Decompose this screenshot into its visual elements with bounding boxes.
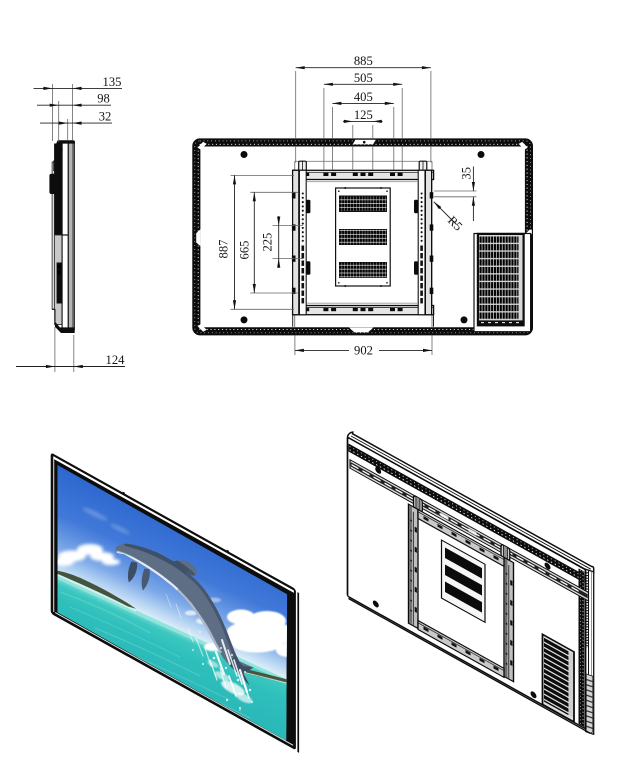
svg-text:902: 902 [354, 343, 373, 357]
svg-text:125: 125 [354, 108, 373, 122]
svg-text:887: 887 [217, 240, 231, 259]
svg-text:885: 885 [354, 54, 373, 68]
svg-text:35: 35 [459, 167, 473, 180]
svg-text:405: 405 [354, 90, 373, 104]
svg-text:32: 32 [99, 110, 112, 124]
svg-text:505: 505 [354, 71, 373, 85]
svg-text:98: 98 [97, 92, 110, 106]
svg-text:135: 135 [103, 75, 122, 89]
svg-text:225: 225 [260, 233, 274, 252]
svg-text:665: 665 [237, 241, 251, 260]
svg-text:124: 124 [106, 353, 126, 367]
